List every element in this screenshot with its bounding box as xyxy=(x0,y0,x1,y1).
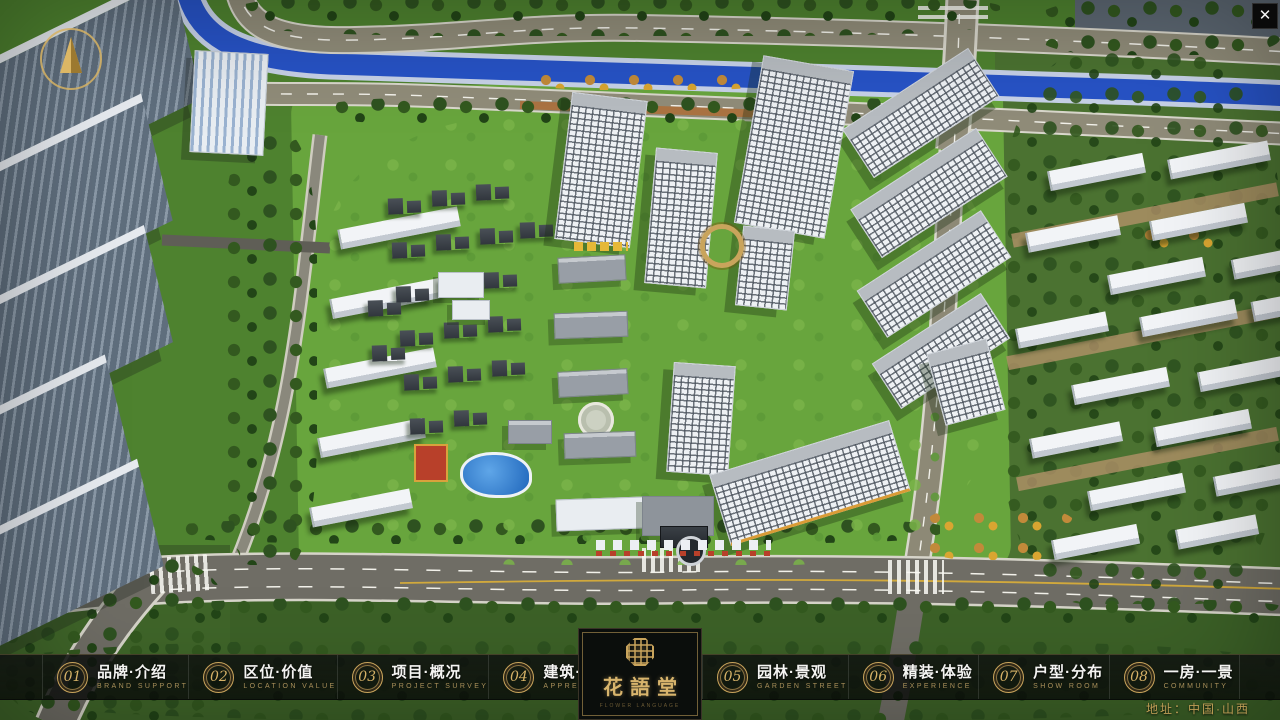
close-icon: ✕ xyxy=(1259,7,1272,24)
menu-subtitle: SHOW ROOM xyxy=(1033,683,1103,690)
midrise-building xyxy=(564,431,637,459)
menu-number-badge: 06 xyxy=(863,662,894,693)
menu-number: 04 xyxy=(510,669,528,685)
menu-number: 02 xyxy=(210,669,228,685)
menu-title: 精装·体验 xyxy=(903,665,973,680)
courtyard-homes xyxy=(492,359,529,376)
menu-item-interior[interactable]: 06 精装·体验EXPERIENCE xyxy=(848,655,978,699)
masterplan-3d-view[interactable] xyxy=(0,0,1280,720)
compass-arrow-shade xyxy=(71,37,82,73)
entrance-colonnade xyxy=(596,540,771,550)
menu-number: 01 xyxy=(64,669,82,685)
utility-building xyxy=(508,420,552,444)
menu-number-badge: 04 xyxy=(503,662,534,693)
retail-strip xyxy=(555,496,644,531)
crosswalk xyxy=(888,560,944,594)
menu-number-badge: 08 xyxy=(1124,662,1155,693)
menu-number-badge: 07 xyxy=(993,662,1024,693)
parked-buses xyxy=(574,242,628,251)
menu-number: 07 xyxy=(1000,669,1018,685)
swimming-pool xyxy=(460,452,532,498)
presentation-window: ✕ 01 品牌·介绍BRAND SUPPORT 02 区位·价值LOCATION… xyxy=(0,0,1280,720)
menu-subtitle: GARDEN STREET xyxy=(757,683,848,690)
courtyard-homes xyxy=(368,299,405,316)
tree-belt xyxy=(1040,0,1280,55)
bar-spacer xyxy=(1239,655,1280,699)
courtyard-homes xyxy=(488,315,525,332)
courtyard-homes xyxy=(476,183,513,200)
menu-item-garden[interactable]: 05 园林·景观GARDEN STREET xyxy=(702,655,848,699)
menu-subtitle: COMMUNITY xyxy=(1164,683,1234,690)
highrise-tower xyxy=(666,362,736,476)
seal-emblem-icon xyxy=(626,638,654,666)
menu-number: 06 xyxy=(869,669,887,685)
project-address: 地址：中国·山西 xyxy=(1146,700,1250,717)
menu-title: 户型·分布 xyxy=(1033,665,1103,680)
midrise-building xyxy=(557,254,626,284)
midrise-building xyxy=(554,311,629,340)
close-button[interactable]: ✕ xyxy=(1252,3,1278,29)
menu-item-project[interactable]: 03 项目·概况PROJECT SURVEY xyxy=(337,655,489,699)
menu-title: 品牌·介绍 xyxy=(97,665,188,680)
menu-subtitle: LOCATION VALUE xyxy=(243,683,336,690)
courtyard-homes xyxy=(454,409,491,426)
menu-group-right: 05 园林·景观GARDEN STREET 06 精装·体验EXPERIENCE… xyxy=(702,655,1280,699)
compass-north-icon xyxy=(40,28,102,90)
menu-item-location[interactable]: 02 区位·价值LOCATION VALUE xyxy=(188,655,336,699)
gold-landscape-ring xyxy=(700,224,744,268)
clubhouse xyxy=(452,300,490,320)
courtyard-homes xyxy=(372,344,409,361)
highrise-tower xyxy=(735,226,795,311)
tree-belt xyxy=(240,0,1000,36)
project-logo-panel[interactable]: 花語堂 FLOWER LANGUAGE xyxy=(578,628,702,720)
flower-beds xyxy=(596,551,771,556)
menu-subtitle: PROJECT SURVEY xyxy=(392,683,489,690)
menu-number: 08 xyxy=(1130,669,1148,685)
clubhouse xyxy=(438,272,484,298)
courtyard-homes xyxy=(392,241,429,258)
menu-number-badge: 01 xyxy=(57,662,88,693)
project-logo-tagline: FLOWER LANGUAGE xyxy=(600,703,681,709)
courtyard-homes xyxy=(484,271,521,288)
courtyard-homes xyxy=(520,221,557,238)
menu-group-left: 01 品牌·介绍BRAND SUPPORT 02 区位·价值LOCATION V… xyxy=(0,655,578,699)
menu-number: 03 xyxy=(358,669,376,685)
courtyard-homes xyxy=(444,321,481,338)
menu-number: 05 xyxy=(724,669,742,685)
menu-title: 园林·景观 xyxy=(757,665,848,680)
courtyard-homes xyxy=(436,233,473,250)
project-logo-name: 花語堂 xyxy=(596,671,684,700)
menu-number-badge: 03 xyxy=(352,662,383,693)
highrise-tower xyxy=(644,148,718,289)
courtyard-homes xyxy=(480,227,517,244)
courtyard-homes xyxy=(388,197,425,214)
menu-number-badge: 02 xyxy=(203,662,234,693)
glass-tower xyxy=(189,50,268,156)
courtyard-homes xyxy=(410,417,447,434)
kindergarten xyxy=(414,444,448,482)
menu-title: 区位·价值 xyxy=(243,665,336,680)
menu-number-badge: 05 xyxy=(717,662,748,693)
tree-belt xyxy=(222,135,317,565)
autumn-trees xyxy=(536,70,766,90)
menu-item-brand[interactable]: 01 品牌·介绍BRAND SUPPORT xyxy=(42,655,188,699)
menu-title: 一房·一景 xyxy=(1164,665,1234,680)
street-trees xyxy=(170,596,1280,630)
midrise-building xyxy=(557,368,628,398)
menu-item-room-view[interactable]: 08 一房·一景COMMUNITY xyxy=(1109,655,1239,699)
menu-title: 项目·概况 xyxy=(392,665,489,680)
courtyard-homes xyxy=(404,373,441,390)
menu-item-floorplan[interactable]: 07 户型·分布SHOW ROOM xyxy=(978,655,1108,699)
menu-subtitle: BRAND SUPPORT xyxy=(97,683,188,690)
menu-subtitle: EXPERIENCE xyxy=(903,683,973,690)
courtyard-homes xyxy=(432,189,469,206)
courtyard-homes xyxy=(448,365,485,382)
